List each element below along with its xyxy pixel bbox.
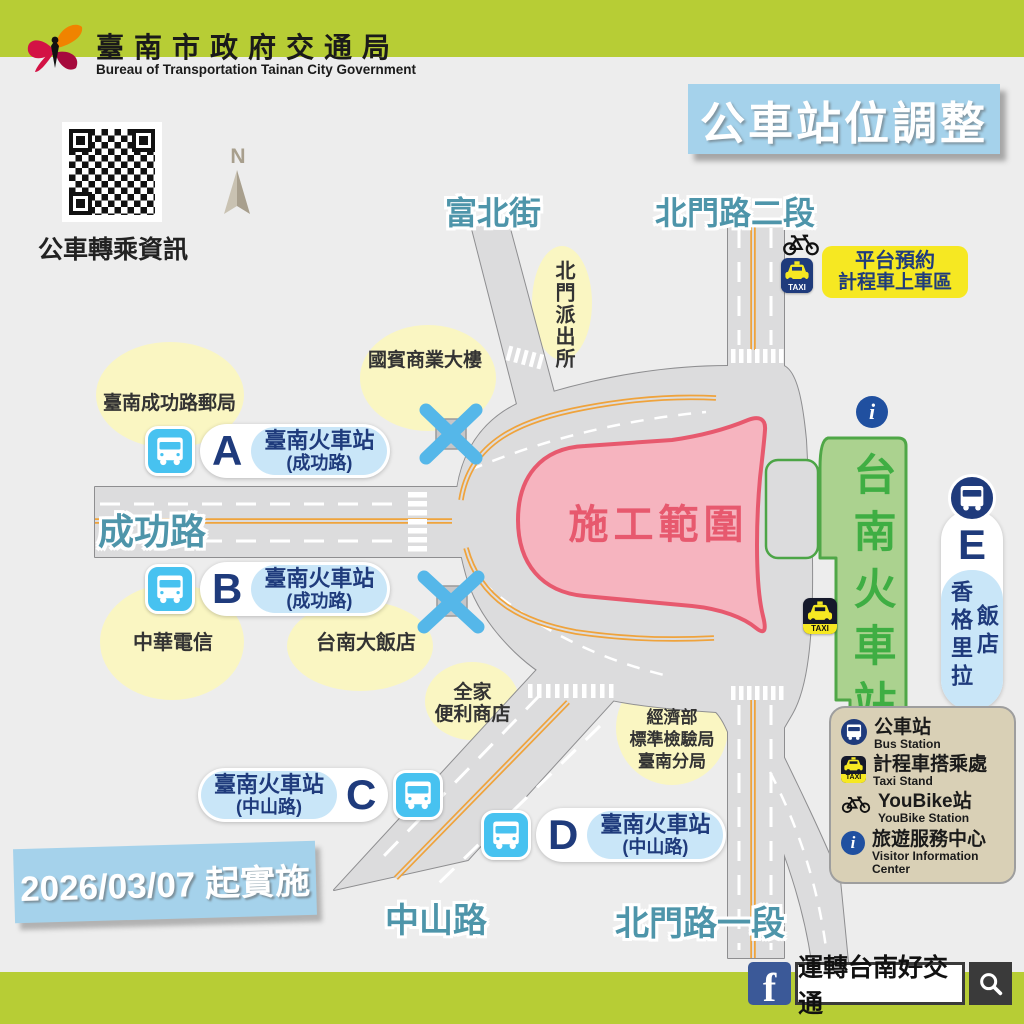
- qr-finder: [132, 129, 155, 152]
- stop-letter: A: [203, 430, 251, 472]
- legend-item-taxi: TAXI 計程車搭乘處 Taxi Stand: [841, 755, 1006, 788]
- place-familymart: 全家 便利商店: [425, 682, 520, 726]
- bus-stop-D: D 臺南火車站(中山路): [481, 808, 726, 862]
- youbike-icon: [841, 793, 871, 814]
- stop-letter: B: [203, 568, 251, 610]
- qr-finder: [69, 192, 92, 215]
- stop-name: 臺南火車站: [600, 813, 710, 837]
- youbike-icon: [782, 230, 820, 257]
- poster-title: 公車站位調整: [700, 87, 988, 152]
- qr-finder: [69, 129, 92, 152]
- stop-road: (中山路): [600, 838, 710, 857]
- station-name: 台南火車站: [840, 452, 902, 737]
- bus-stop-B: B 臺南火車站(成功路): [145, 562, 390, 616]
- title-badge: 公車站位調整: [688, 84, 1000, 154]
- station-connector: [766, 460, 818, 558]
- place-grand-hotel: 台南大飯店: [316, 626, 416, 655]
- bus-icon: [481, 810, 531, 860]
- bus-stop-A: A 臺南火車站(成功路): [145, 424, 390, 478]
- taxi-pickup-zone-badge: 平台預約 計程車上車區: [822, 246, 968, 298]
- place-shangri-la: 香格里拉 飯店: [941, 570, 1003, 710]
- facebook-icon: f: [748, 962, 791, 1005]
- bus-icon: [393, 770, 443, 820]
- stop-letter: E: [958, 522, 986, 570]
- street-label-chenggong: 成功路: [98, 503, 206, 555]
- stop-name: 臺南火車站: [214, 773, 324, 797]
- stop-letter: C: [337, 774, 385, 816]
- construction-zone-label: 施工範圍: [556, 492, 761, 550]
- info-icon: i: [856, 396, 888, 428]
- bus-stop-E: E 香格里拉 飯店: [938, 474, 1006, 710]
- legend-item-bus: 公車站 Bus Station: [841, 718, 1006, 751]
- stop-name: 臺南火車站: [264, 429, 374, 453]
- info-icon: i: [841, 831, 865, 855]
- search-icon: [969, 962, 1012, 1005]
- legend-item-info: i 旅遊服務中心 Visitor Information Center: [841, 830, 1006, 876]
- taxi-icon-label: TAXI: [781, 283, 813, 293]
- taxi-icon-label: TAXI: [803, 624, 837, 634]
- facebook-page-name: 運轉台南好交通: [795, 962, 965, 1005]
- stop-road: (成功路): [264, 592, 374, 611]
- bus-icon: [145, 426, 195, 476]
- compass-arrow: [224, 170, 250, 214]
- place-post-office: 臺南成功路郵局: [103, 388, 236, 415]
- poster-canvas: 臺南市政府交通局 Bureau of Transportation Tainan…: [0, 0, 1024, 1024]
- taxi-icon: TAXI: [841, 756, 866, 782]
- facebook-search-bar: f 運轉台南好交通: [748, 962, 1012, 1005]
- street-label-beimen-1: 北門路一段: [615, 896, 785, 945]
- stop-road: (中山路): [214, 798, 324, 817]
- bus-icon: [841, 719, 867, 745]
- stop-road: (成功路): [264, 454, 374, 473]
- stop-name: 臺南火車站: [264, 567, 374, 591]
- street-label-fubei: 富北街: [445, 188, 541, 234]
- place-chunghwa-telecom: 中華電信: [133, 626, 213, 655]
- place-police-station: 北門派出所: [549, 260, 578, 370]
- compass: N: [218, 146, 258, 167]
- legend-item-youbike: YouBike站 YouBike Station: [841, 792, 1006, 825]
- bus-icon: [145, 564, 195, 614]
- bus-icon: [948, 474, 996, 522]
- stop-letter: D: [539, 814, 587, 856]
- street-label-beimen-2: 北門路二段: [655, 188, 815, 234]
- legend: 公車站 Bus Station TAXI 計程車搭乘處 Taxi Stand: [829, 706, 1016, 884]
- agency-logo: [24, 14, 88, 80]
- taxi-icon-label: TAXI: [841, 774, 866, 782]
- taxi-icon: TAXI: [803, 598, 837, 634]
- place-guobin-building: 國賓商業大樓: [368, 345, 482, 372]
- taxi-icon: TAXI: [781, 258, 813, 293]
- place-bsmi: 經濟部 標準檢驗局 臺南分局: [613, 707, 731, 773]
- bus-stop-C: C 臺南火車站(中山路): [198, 768, 443, 822]
- effective-date: 2026/03/07 起實施: [19, 852, 310, 911]
- agency-name-en: Bureau of Transportation Tainan City Gov…: [96, 62, 416, 77]
- qr-caption: 公車轉乘資訊: [28, 230, 198, 266]
- qr-code: [62, 122, 162, 222]
- agency-name: 臺南市政府交通局: [96, 26, 400, 66]
- street-label-zhongshan: 中山路: [385, 893, 487, 942]
- effective-date-badge: 2026/03/07 起實施: [13, 841, 317, 923]
- compass-n-label: N: [218, 146, 258, 167]
